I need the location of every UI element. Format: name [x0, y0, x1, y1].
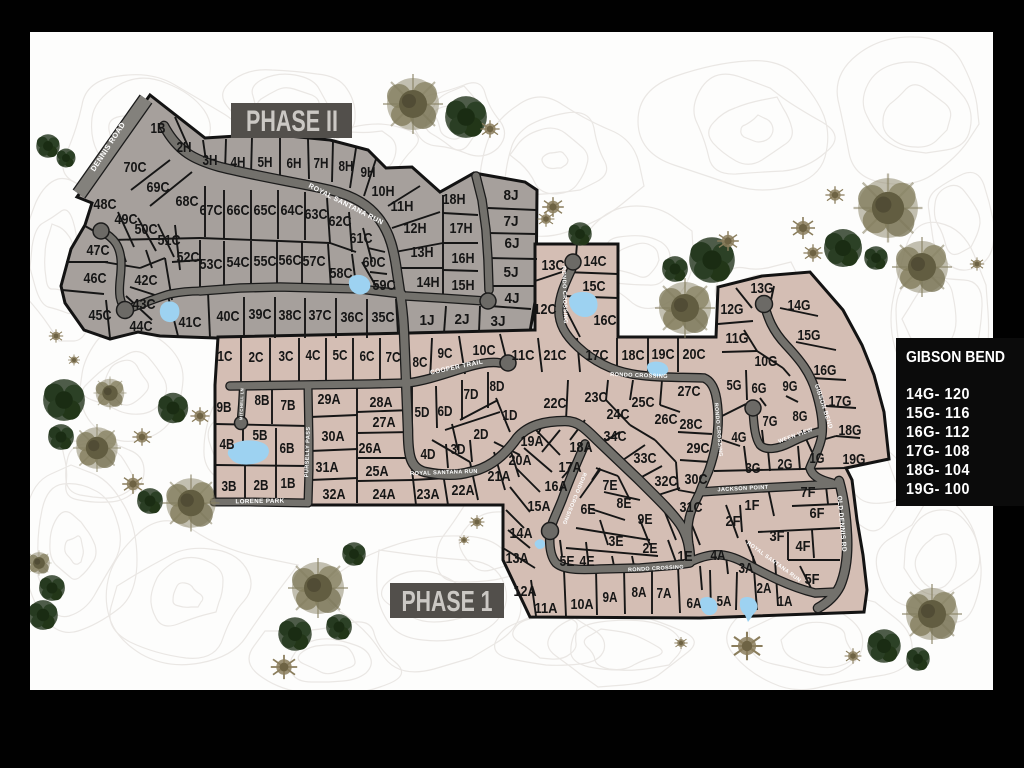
svg-text:1F: 1F: [745, 497, 760, 514]
svg-text:2B: 2B: [254, 477, 269, 494]
svg-text:6B: 6B: [280, 440, 295, 457]
svg-text:62C: 62C: [329, 213, 352, 230]
svg-text:61C: 61C: [350, 230, 373, 247]
svg-text:1J: 1J: [420, 312, 435, 329]
svg-text:6H: 6H: [287, 155, 302, 172]
svg-text:8C: 8C: [413, 354, 428, 371]
svg-text:3J: 3J: [491, 313, 506, 330]
svg-text:2H: 2H: [177, 139, 192, 156]
svg-text:12A: 12A: [514, 583, 537, 600]
svg-text:3A: 3A: [739, 560, 754, 577]
svg-text:9E: 9E: [638, 511, 653, 528]
svg-text:25A: 25A: [366, 463, 389, 480]
svg-text:2D: 2D: [474, 426, 489, 443]
svg-text:7F: 7F: [801, 484, 816, 501]
svg-text:12H: 12H: [404, 220, 427, 237]
svg-text:16H: 16H: [452, 250, 475, 267]
svg-text:66C: 66C: [227, 202, 250, 219]
svg-text:16C: 16C: [594, 312, 617, 329]
svg-text:6C: 6C: [360, 348, 375, 365]
svg-text:14G- 120: 14G- 120: [906, 386, 970, 403]
svg-text:32A: 32A: [323, 486, 346, 503]
svg-text:4C: 4C: [306, 347, 321, 364]
svg-text:68C: 68C: [176, 193, 199, 210]
svg-text:11C: 11C: [512, 347, 535, 364]
svg-text:19G- 100: 19G- 100: [906, 481, 970, 498]
svg-text:7J: 7J: [504, 213, 519, 230]
svg-text:56C: 56C: [279, 252, 302, 269]
svg-text:39C: 39C: [249, 306, 272, 323]
svg-text:5F: 5F: [805, 571, 820, 588]
svg-text:21A: 21A: [488, 468, 511, 485]
svg-text:4F: 4F: [796, 538, 811, 555]
svg-text:17G- 108: 17G- 108: [906, 443, 970, 460]
svg-text:6A: 6A: [687, 595, 702, 612]
svg-text:23C: 23C: [585, 389, 608, 406]
svg-text:11G: 11G: [726, 330, 749, 347]
svg-text:14G: 14G: [788, 297, 811, 314]
svg-text:29C: 29C: [687, 440, 710, 457]
svg-text:6F: 6F: [810, 505, 825, 522]
svg-text:2G: 2G: [778, 456, 793, 473]
svg-text:31C: 31C: [680, 499, 703, 516]
svg-text:36C: 36C: [341, 309, 364, 326]
svg-text:5G: 5G: [727, 377, 742, 394]
svg-text:28C: 28C: [680, 416, 703, 433]
svg-text:6D: 6D: [438, 403, 453, 420]
svg-text:49C: 49C: [115, 211, 138, 228]
svg-text:5H: 5H: [258, 154, 273, 171]
svg-text:8E: 8E: [617, 495, 632, 512]
svg-text:30C: 30C: [685, 471, 708, 488]
svg-text:1C: 1C: [218, 348, 233, 365]
svg-text:16G- 112: 16G- 112: [906, 424, 970, 441]
svg-text:14A: 14A: [510, 525, 533, 542]
svg-text:54C: 54C: [227, 254, 250, 271]
svg-text:9G: 9G: [783, 378, 798, 395]
svg-text:7B: 7B: [281, 397, 296, 414]
svg-text:7C: 7C: [386, 349, 401, 366]
svg-text:9H: 9H: [361, 164, 376, 181]
svg-text:7A: 7A: [657, 585, 672, 602]
svg-text:7D: 7D: [464, 386, 479, 403]
svg-text:4A: 4A: [711, 547, 726, 564]
svg-text:9C: 9C: [438, 345, 453, 362]
svg-text:69C: 69C: [147, 179, 170, 196]
svg-text:5D: 5D: [415, 404, 430, 421]
svg-text:65C: 65C: [254, 202, 277, 219]
svg-text:26A: 26A: [359, 440, 382, 457]
svg-text:31A: 31A: [316, 459, 339, 476]
svg-text:10C: 10C: [473, 342, 496, 359]
svg-text:5J: 5J: [504, 264, 519, 281]
svg-text:3H: 3H: [203, 152, 218, 169]
svg-text:1D: 1D: [503, 407, 518, 424]
svg-text:PHASE 1: PHASE 1: [402, 586, 493, 618]
svg-text:44C: 44C: [130, 318, 153, 335]
svg-text:12G: 12G: [721, 301, 744, 318]
svg-text:22A: 22A: [452, 482, 475, 499]
svg-text:18G- 104: 18G- 104: [906, 462, 970, 479]
svg-text:15C: 15C: [583, 278, 606, 295]
svg-text:34C: 34C: [604, 428, 627, 445]
svg-text:19C: 19C: [652, 346, 675, 363]
svg-text:3B: 3B: [222, 478, 237, 495]
svg-text:8B: 8B: [255, 392, 270, 409]
svg-text:2F: 2F: [726, 513, 741, 530]
svg-text:4E: 4E: [580, 553, 595, 570]
svg-text:6G: 6G: [752, 380, 767, 397]
svg-text:45C: 45C: [89, 307, 112, 324]
svg-text:43C: 43C: [133, 296, 156, 313]
svg-text:57C: 57C: [303, 253, 326, 270]
svg-text:70C: 70C: [124, 159, 147, 176]
svg-text:10G: 10G: [755, 353, 778, 370]
svg-text:1B: 1B: [281, 475, 296, 492]
svg-text:15G: 15G: [798, 327, 821, 344]
svg-text:11H: 11H: [391, 198, 414, 215]
svg-text:10A: 10A: [571, 596, 594, 613]
svg-text:GIBSON BEND: GIBSON BEND: [906, 349, 1005, 366]
svg-text:2A: 2A: [757, 580, 772, 597]
svg-text:3D: 3D: [451, 441, 466, 458]
svg-text:4H: 4H: [231, 154, 246, 171]
svg-text:48C: 48C: [94, 196, 117, 213]
svg-text:8G: 8G: [793, 408, 808, 425]
svg-text:1B: 1B: [151, 120, 166, 137]
svg-text:42C: 42C: [135, 272, 158, 289]
svg-text:13A: 13A: [506, 550, 529, 567]
svg-text:7G: 7G: [763, 413, 778, 430]
svg-text:18G: 18G: [839, 422, 862, 439]
svg-text:13H: 13H: [411, 244, 434, 261]
svg-text:1G: 1G: [810, 450, 825, 467]
svg-text:17C: 17C: [586, 347, 609, 364]
svg-text:55C: 55C: [254, 253, 277, 270]
svg-text:27C: 27C: [678, 383, 701, 400]
svg-text:17G: 17G: [829, 393, 852, 410]
svg-text:28A: 28A: [370, 394, 393, 411]
svg-text:15A: 15A: [528, 498, 551, 515]
svg-text:16A: 16A: [545, 478, 568, 495]
svg-text:5B: 5B: [253, 427, 268, 444]
svg-text:5E: 5E: [560, 553, 575, 570]
svg-text:9A: 9A: [603, 589, 618, 606]
svg-text:50C: 50C: [135, 221, 158, 238]
svg-text:20A: 20A: [509, 452, 532, 469]
svg-text:4B: 4B: [220, 436, 235, 453]
svg-text:32C: 32C: [655, 473, 678, 490]
svg-text:60C: 60C: [363, 254, 386, 271]
svg-text:33C: 33C: [634, 450, 657, 467]
svg-text:3F: 3F: [770, 528, 785, 545]
svg-text:1A: 1A: [778, 593, 793, 610]
svg-text:58C: 58C: [330, 265, 353, 282]
svg-text:PHASE II: PHASE II: [246, 105, 338, 138]
svg-text:40C: 40C: [217, 308, 240, 325]
svg-text:19A: 19A: [521, 433, 544, 450]
svg-text:52C: 52C: [177, 249, 200, 266]
svg-text:59C: 59C: [373, 277, 396, 294]
svg-text:8H: 8H: [339, 158, 354, 175]
svg-text:37C: 37C: [309, 307, 332, 324]
svg-text:17A: 17A: [559, 459, 582, 476]
svg-text:16G: 16G: [814, 362, 837, 379]
svg-text:18H: 18H: [443, 191, 466, 208]
svg-text:7H: 7H: [314, 155, 329, 172]
svg-text:12C: 12C: [534, 301, 557, 318]
svg-text:4G: 4G: [732, 429, 747, 446]
svg-text:8J: 8J: [504, 187, 519, 204]
svg-text:4D: 4D: [421, 446, 436, 463]
svg-text:5C: 5C: [333, 347, 348, 364]
svg-text:51C: 51C: [158, 232, 181, 249]
svg-text:64C: 64C: [281, 202, 304, 219]
svg-text:15H: 15H: [452, 277, 475, 294]
svg-text:24A: 24A: [373, 486, 396, 503]
svg-text:8A: 8A: [632, 584, 647, 601]
svg-text:27A: 27A: [373, 414, 396, 431]
svg-text:21C: 21C: [544, 347, 567, 364]
svg-text:14C: 14C: [584, 253, 607, 270]
svg-text:30A: 30A: [322, 428, 345, 445]
svg-text:6J: 6J: [505, 235, 520, 252]
svg-text:LORENE PARK: LORENE PARK: [235, 498, 284, 506]
svg-text:17H: 17H: [450, 220, 473, 237]
svg-text:46C: 46C: [84, 270, 107, 287]
svg-text:15G- 116: 15G- 116: [906, 405, 970, 422]
svg-text:9B: 9B: [217, 399, 232, 416]
svg-text:14H: 14H: [417, 274, 440, 291]
svg-text:23A: 23A: [417, 486, 440, 503]
svg-text:41C: 41C: [179, 314, 202, 331]
svg-text:5A: 5A: [717, 593, 732, 610]
svg-text:3E: 3E: [609, 533, 624, 550]
svg-text:18C: 18C: [622, 347, 645, 364]
svg-text:18A: 18A: [570, 439, 593, 456]
svg-text:3C: 3C: [279, 348, 294, 365]
svg-text:47C: 47C: [87, 242, 110, 259]
svg-text:38C: 38C: [279, 307, 302, 324]
svg-text:53C: 53C: [200, 256, 223, 273]
svg-text:13G: 13G: [751, 280, 774, 297]
svg-text:2E: 2E: [643, 540, 658, 557]
svg-text:20C: 20C: [683, 346, 706, 363]
svg-text:6E: 6E: [581, 501, 596, 518]
svg-text:67C: 67C: [200, 202, 223, 219]
svg-text:3G: 3G: [746, 460, 761, 477]
svg-text:1E: 1E: [678, 548, 693, 565]
svg-text:35C: 35C: [372, 309, 395, 326]
svg-text:22C: 22C: [544, 395, 567, 412]
svg-text:26C: 26C: [655, 411, 678, 428]
svg-text:25C: 25C: [632, 394, 655, 411]
svg-text:8D: 8D: [490, 378, 505, 395]
svg-text:11A: 11A: [535, 600, 558, 617]
svg-text:7E: 7E: [603, 477, 618, 494]
svg-text:19G: 19G: [843, 451, 866, 468]
svg-text:29A: 29A: [318, 391, 341, 408]
svg-text:4J: 4J: [505, 290, 520, 307]
svg-text:63C: 63C: [305, 206, 328, 223]
svg-text:24C: 24C: [607, 406, 630, 423]
svg-text:2J: 2J: [455, 311, 470, 328]
svg-text:2C: 2C: [249, 349, 264, 366]
